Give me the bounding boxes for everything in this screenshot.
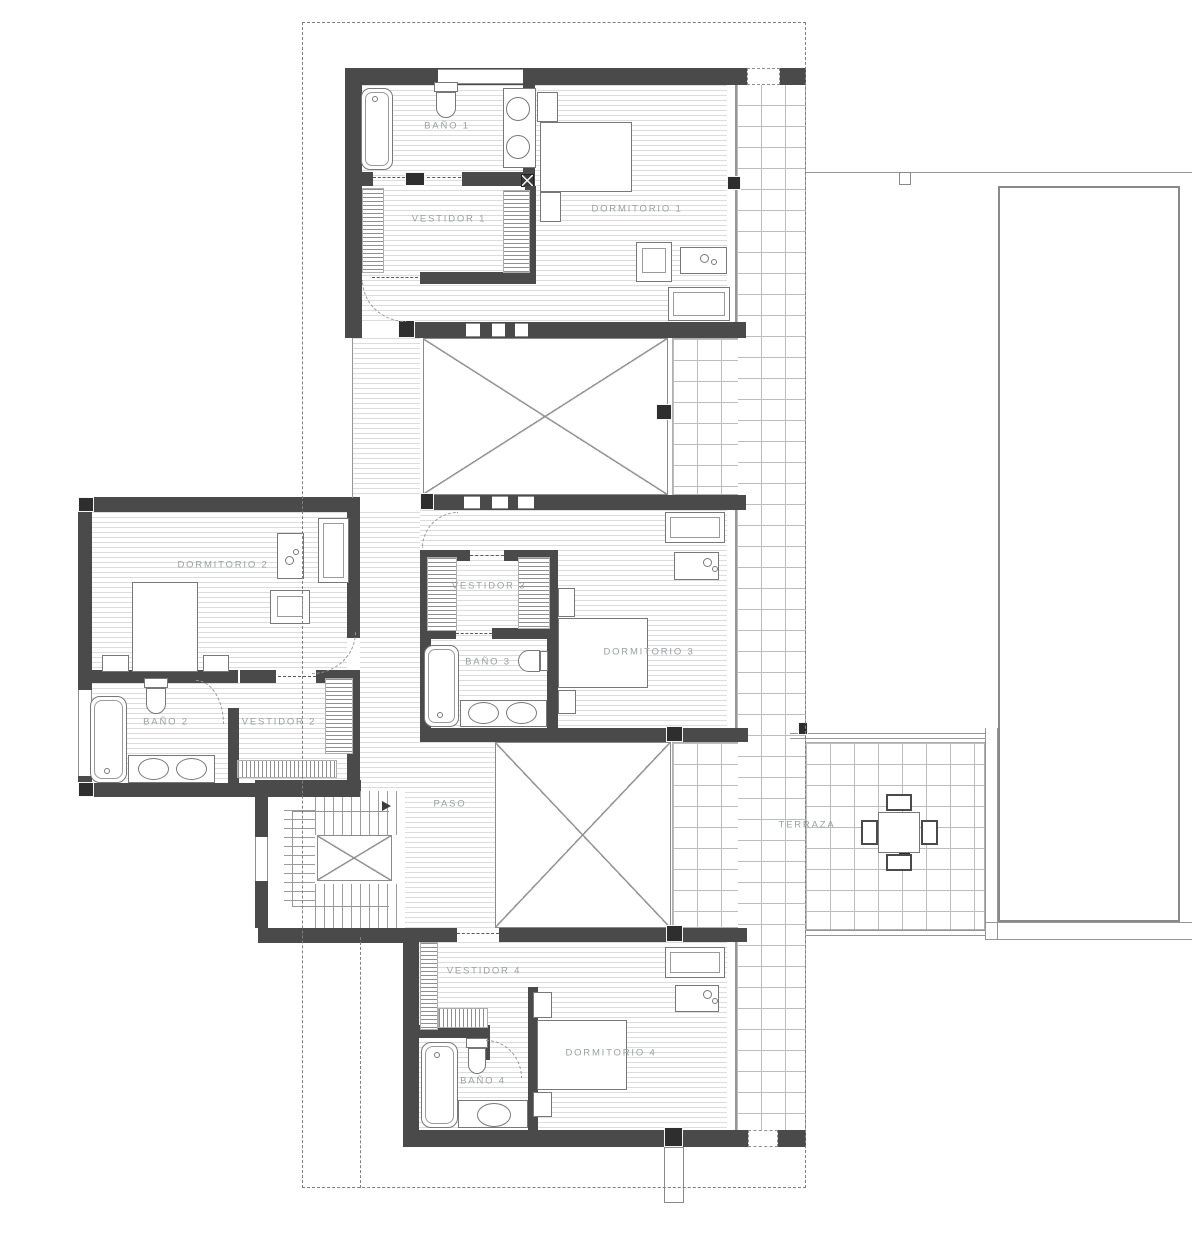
bathtub-drain <box>104 768 110 774</box>
bed <box>132 582 198 672</box>
toilet-tank <box>144 678 168 688</box>
pillar <box>78 497 94 512</box>
toilet-bowl <box>146 688 166 714</box>
pool-outline <box>998 186 1180 922</box>
sink <box>138 758 169 780</box>
decor-circle <box>285 556 294 565</box>
terrace-chair <box>886 854 912 871</box>
terrace-rail <box>806 930 985 931</box>
wall <box>255 881 268 928</box>
boundary-dashed-segment <box>360 937 361 1188</box>
window <box>255 837 268 881</box>
boundary-dashed <box>302 22 806 1188</box>
floor-plan: BAÑO 1 VESTIDOR 1 DORMITORIO 1 DORMITORI… <box>0 0 1192 1248</box>
terrace-chair <box>886 794 912 811</box>
room-label-bano2: BAÑO 2 <box>143 717 189 728</box>
terrace-rail <box>806 935 985 936</box>
nightstand <box>102 655 129 672</box>
site-line <box>806 172 1192 173</box>
terrace-rail <box>790 738 985 739</box>
terrace-rail <box>790 733 985 734</box>
terrace-rail <box>985 728 986 940</box>
site-notch <box>899 172 911 185</box>
wall <box>240 670 276 683</box>
stairs-rail-left <box>292 811 293 906</box>
walkway-line <box>985 922 1192 923</box>
pillar <box>78 782 94 797</box>
decor-circle <box>293 549 299 555</box>
sink <box>176 758 207 780</box>
wall <box>255 791 268 837</box>
terrace-chair <box>861 820 878 845</box>
terrace-table <box>878 812 920 853</box>
nightstand <box>203 655 229 672</box>
room-label-dormitorio2: DORMITORIO 2 <box>177 560 268 571</box>
terrace-chair <box>921 820 938 845</box>
walkway-line <box>985 939 1192 940</box>
